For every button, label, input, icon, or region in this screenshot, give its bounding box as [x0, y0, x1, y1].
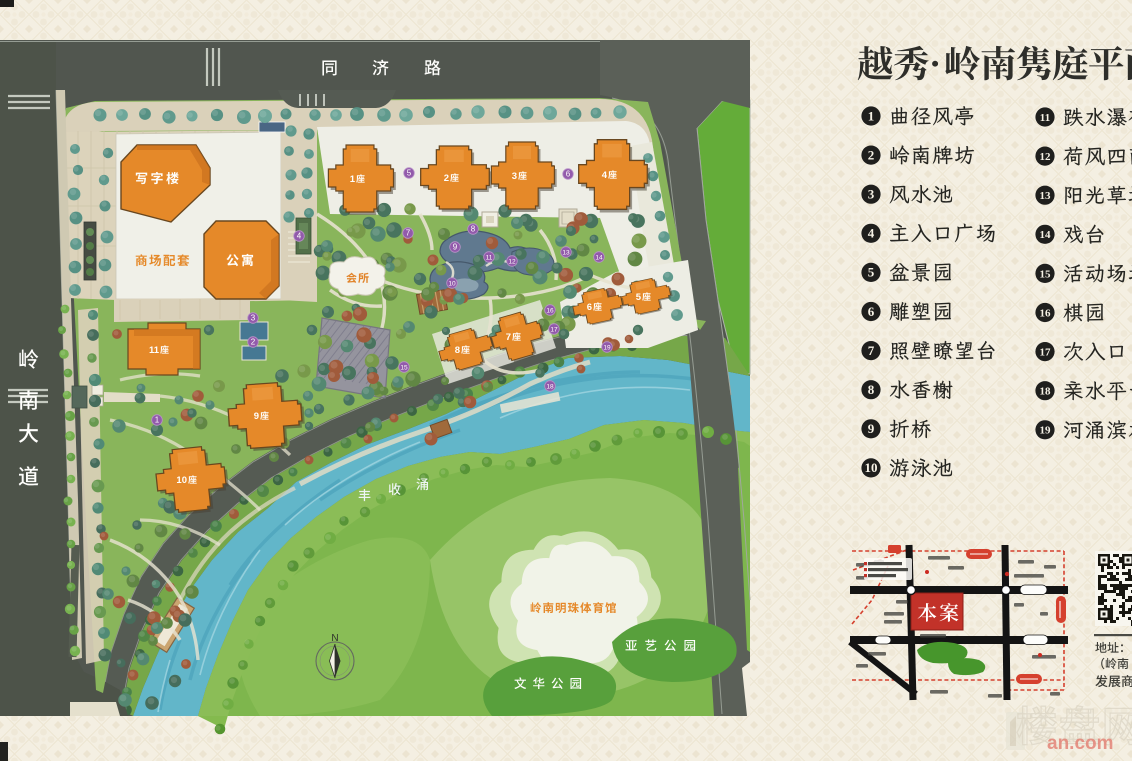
svg-text:19: 19 [1040, 425, 1052, 437]
svg-text:4: 4 [868, 226, 875, 241]
svg-text:7: 7 [868, 343, 875, 358]
svg-text:13: 13 [1040, 190, 1052, 202]
svg-text:10: 10 [865, 460, 878, 475]
svg-text:16: 16 [1040, 307, 1052, 319]
svg-text:9: 9 [868, 421, 875, 436]
svg-text:15: 15 [1040, 268, 1052, 280]
svg-text:12: 12 [1040, 151, 1052, 163]
svg-text:18: 18 [1040, 386, 1052, 398]
svg-text:2: 2 [868, 147, 875, 162]
svg-text:8: 8 [868, 382, 875, 397]
svg-text:an.com: an.com [1047, 733, 1114, 754]
svg-text:17: 17 [1040, 347, 1052, 359]
svg-text:1: 1 [868, 108, 875, 123]
svg-text:5: 5 [868, 265, 875, 280]
svg-text:3: 3 [868, 187, 875, 202]
svg-text:11: 11 [1040, 112, 1050, 124]
svg-text:6: 6 [868, 304, 875, 319]
svg-text:14: 14 [1040, 229, 1052, 241]
